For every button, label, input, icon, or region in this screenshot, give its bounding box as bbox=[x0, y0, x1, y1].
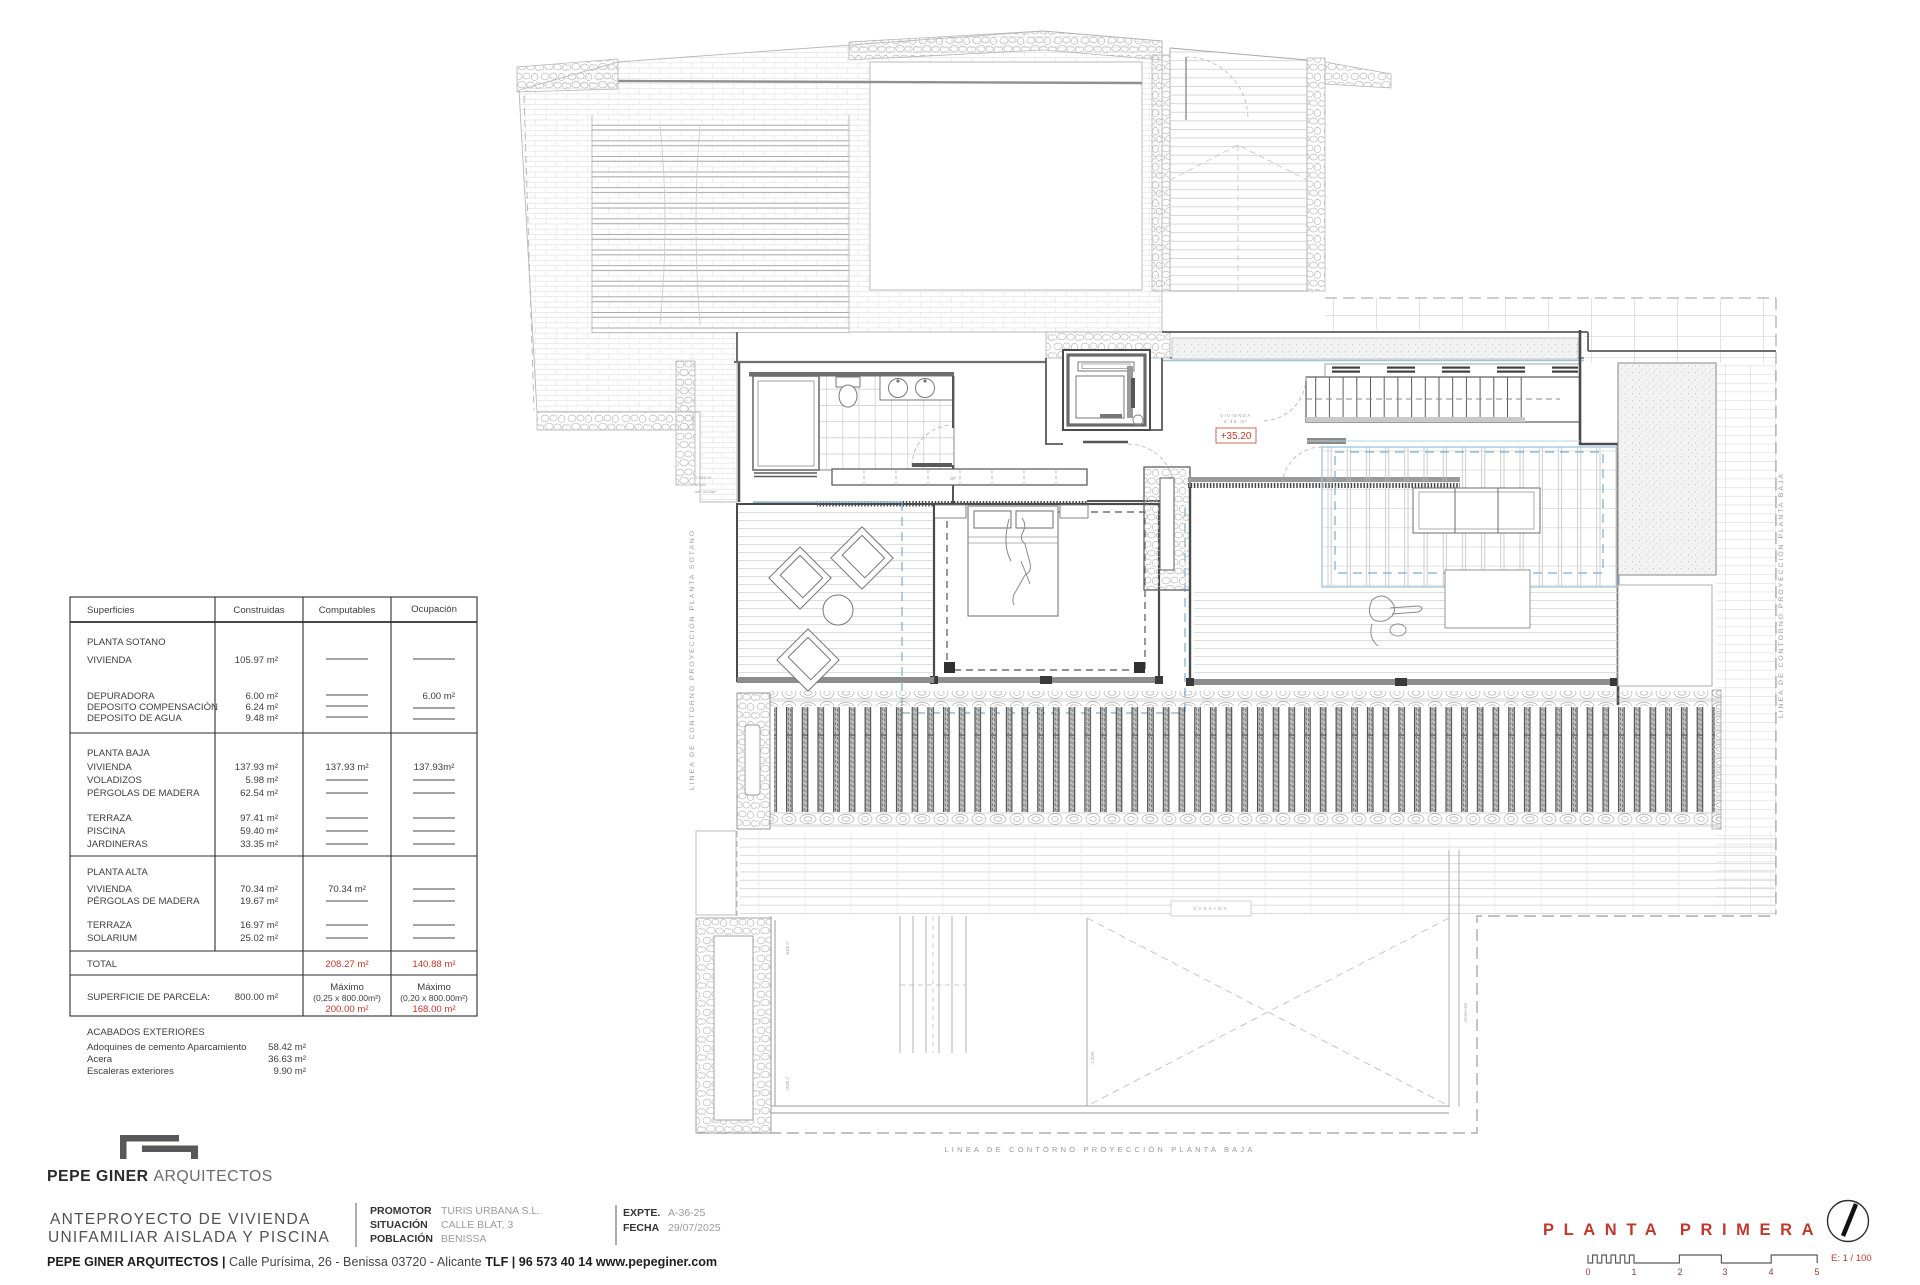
svg-text:137.93 m²: 137.93 m² bbox=[235, 762, 279, 773]
svg-text:GF: GF bbox=[950, 476, 957, 481]
svg-text:#m² 35.20m²: #m² 35.20m² bbox=[695, 490, 717, 494]
svg-text:5.98 m²: 5.98 m² bbox=[245, 775, 278, 786]
svg-text:EXPTE.: EXPTE. bbox=[623, 1207, 660, 1219]
svg-text:A-36-25: A-36-25 bbox=[668, 1207, 706, 1219]
svg-text:105.97 m²: 105.97 m² bbox=[235, 655, 279, 666]
svg-text:VIVIENDA: VIVIENDA bbox=[87, 655, 132, 666]
svg-text:208.27 m²: 208.27 m² bbox=[325, 959, 369, 970]
svg-text:Escaleras exteriores: Escaleras exteriores bbox=[87, 1066, 174, 1077]
svg-text:MDE 0°: MDE 0° bbox=[785, 940, 790, 955]
svg-text:VOLADIZOS: VOLADIZOS bbox=[87, 775, 142, 786]
svg-text:SITUACIÓN: SITUACIÓN bbox=[370, 1218, 428, 1231]
svg-text:PEPE GINER ARQUITECTOS: PEPE GINER ARQUITECTOS bbox=[47, 1168, 273, 1185]
svg-text:Adoquines de cemento Aparcamie: Adoquines de cemento Aparcamiento bbox=[87, 1042, 246, 1053]
svg-text:FECHA: FECHA bbox=[623, 1222, 660, 1234]
svg-text:TERRAZA: TERRAZA bbox=[87, 813, 132, 824]
svg-text:58.42 m²: 58.42 m² bbox=[268, 1042, 307, 1053]
svg-text:CASA+DA: CASA+DA bbox=[1463, 1002, 1468, 1022]
svg-text:5: 5 bbox=[1814, 1267, 1819, 1277]
svg-text:CALLE BLAT, 3: CALLE BLAT, 3 bbox=[441, 1219, 513, 1231]
svg-text:3: 3 bbox=[1722, 1267, 1727, 1277]
svg-text:PEPE GINER ARQUITECTOS | Calle: PEPE GINER ARQUITECTOS | Calle Purísima,… bbox=[47, 1255, 717, 1269]
svg-text:PROMOTOR: PROMOTOR bbox=[370, 1205, 432, 1217]
svg-text:SOLARIUM: SOLARIUM bbox=[87, 933, 137, 944]
svg-text:1: 1 bbox=[1631, 1267, 1636, 1277]
svg-text:PÉRGOLAS DE MADERA: PÉRGOLAS DE MADERA bbox=[87, 788, 200, 799]
svg-text:6.00 m²: 6.00 m² bbox=[422, 691, 455, 702]
svg-text:Superficies: Superficies bbox=[87, 605, 135, 616]
svg-text:UNIFAMILIAR AISLADA Y PISCINA: UNIFAMILIAR AISLADA Y PISCINA bbox=[48, 1229, 330, 1246]
svg-text:m²100: m²100 bbox=[695, 483, 706, 487]
svg-text:19.67 m²: 19.67 m² bbox=[240, 896, 279, 907]
svg-text:3.48 m²: 3.48 m² bbox=[1224, 419, 1249, 424]
svg-text:16.97 m²: 16.97 m² bbox=[240, 920, 279, 931]
svg-text:137.93 m²: 137.93 m² bbox=[325, 762, 369, 773]
svg-text:LINEA DE CONTORNO PROYECCIÓN P: LINEA DE CONTORNO PROYECCIÓN PLANTA SOTA… bbox=[687, 529, 696, 790]
svg-text:97.41 m²: 97.41 m² bbox=[240, 813, 279, 824]
svg-text:200.00 m²: 200.00 m² bbox=[325, 1004, 369, 1015]
svg-text:29/07/2025: 29/07/2025 bbox=[668, 1222, 721, 1234]
svg-text:+35.20: +35.20 bbox=[1221, 431, 1252, 442]
svg-text:TURIS URBANA S.L.: TURIS URBANA S.L. bbox=[441, 1205, 540, 1217]
svg-text:PÉRGOLAS DE MADERA: PÉRGOLAS DE MADERA bbox=[87, 896, 200, 907]
svg-text:PLANTA SOTANO: PLANTA SOTANO bbox=[87, 637, 166, 648]
svg-text:Máximo: Máximo bbox=[330, 982, 364, 993]
svg-text:VIVIENDA: VIVIENDA bbox=[87, 884, 132, 895]
svg-text:Acera: Acera bbox=[87, 1054, 113, 1065]
svg-text:VIVIENDA: VIVIENDA bbox=[1220, 413, 1252, 418]
svg-text:DEPOSITO DE AGUA: DEPOSITO DE AGUA bbox=[87, 713, 182, 724]
svg-text:Construidas: Construidas bbox=[233, 605, 284, 616]
svg-text:Computables: Computables bbox=[319, 605, 376, 616]
svg-text:JARDINERAS: JARDINERAS bbox=[87, 839, 148, 850]
svg-text:70.34 m²: 70.34 m² bbox=[328, 884, 367, 895]
svg-text:TOTAL: TOTAL bbox=[87, 959, 118, 970]
svg-text:9.48 m²: 9.48 m² bbox=[245, 713, 278, 724]
svg-text:800.00 m²: 800.00 m² bbox=[235, 992, 279, 1003]
svg-text:SUPERFICIE DE PARCELA:: SUPERFICIE DE PARCELA: bbox=[87, 992, 210, 1003]
svg-text:ANTEPROYECTO DE VIVIENDA: ANTEPROYECTO DE VIVIENDA bbox=[50, 1211, 311, 1228]
svg-text:Ocupación: Ocupación bbox=[411, 604, 457, 615]
svg-text:(0,20 x 800.00m²): (0,20 x 800.00m²) bbox=[400, 993, 468, 1003]
svg-text:25.02 m²: 25.02 m² bbox=[240, 933, 279, 944]
svg-text:6.24 m²: 6.24 m² bbox=[245, 702, 278, 713]
svg-text:DEPOSITO COMPENSACIÓN: DEPOSITO COMPENSACIÓN bbox=[87, 702, 218, 713]
svg-text:DEPURADORA: DEPURADORA bbox=[87, 691, 155, 702]
svg-text:LINEA DE CONTORNO PROYECCIÓN P: LINEA DE CONTORNO PROYECCIÓN PLANTA BAJA bbox=[944, 1145, 1255, 1154]
svg-text:168.00 m²: 168.00 m² bbox=[412, 1004, 456, 1015]
svg-text:36.63 m²: 36.63 m² bbox=[268, 1054, 307, 1065]
svg-text:(0,25 x 800.00m²): (0,25 x 800.00m²) bbox=[313, 993, 381, 1003]
svg-text:BENISSA: BENISSA bbox=[441, 1233, 487, 1245]
svg-text:137.93m²: 137.93m² bbox=[414, 762, 455, 773]
svg-text:2: 2 bbox=[1677, 1267, 1682, 1277]
svg-text:MDE 1°: MDE 1° bbox=[785, 1075, 790, 1090]
svg-text:VIVIENDA: VIVIENDA bbox=[87, 762, 132, 773]
svg-text:62.54 m²: 62.54 m² bbox=[240, 788, 279, 799]
svg-text:T 3000 SI: T 3000 SI bbox=[695, 476, 711, 480]
svg-text:0: 0 bbox=[1585, 1267, 1590, 1277]
svg-text:6.00 m²: 6.00 m² bbox=[245, 691, 278, 702]
svg-text:Máximo: Máximo bbox=[417, 982, 451, 993]
svg-text:E: 1 / 100: E: 1 / 100 bbox=[1831, 1253, 1872, 1264]
svg-text:PISCINA: PISCINA bbox=[87, 826, 126, 837]
svg-text:PLANTA ALTA: PLANTA ALTA bbox=[87, 867, 148, 878]
svg-text:33.35 m²: 33.35 m² bbox=[240, 839, 279, 850]
svg-text:LINEA DE CONTORNO PROYECCIÓN P: LINEA DE CONTORNO PROYECCIÓN PLANTA BAJA bbox=[1776, 472, 1785, 718]
svg-text:CASA+DA: CASA+DA bbox=[1193, 906, 1228, 911]
svg-text:140.88 m²: 140.88 m² bbox=[412, 959, 456, 970]
svg-text:PLANTA BAJA: PLANTA BAJA bbox=[87, 748, 150, 759]
svg-text:70.34 m²: 70.34 m² bbox=[240, 884, 279, 895]
svg-text:59.40 m²: 59.40 m² bbox=[240, 826, 279, 837]
svg-text:4: 4 bbox=[1768, 1267, 1773, 1277]
svg-text:TERRAZA: TERRAZA bbox=[87, 920, 132, 931]
svg-text:POBLACIÓN: POBLACIÓN bbox=[370, 1232, 433, 1245]
svg-text:-1.30M: -1.30M bbox=[1090, 1051, 1095, 1065]
svg-text:PLANTA PRIMERA: PLANTA PRIMERA bbox=[1543, 1221, 1823, 1239]
svg-text:9.90 m²: 9.90 m² bbox=[273, 1066, 306, 1077]
svg-text:ACABADOS EXTERIORES: ACABADOS EXTERIORES bbox=[87, 1027, 205, 1038]
